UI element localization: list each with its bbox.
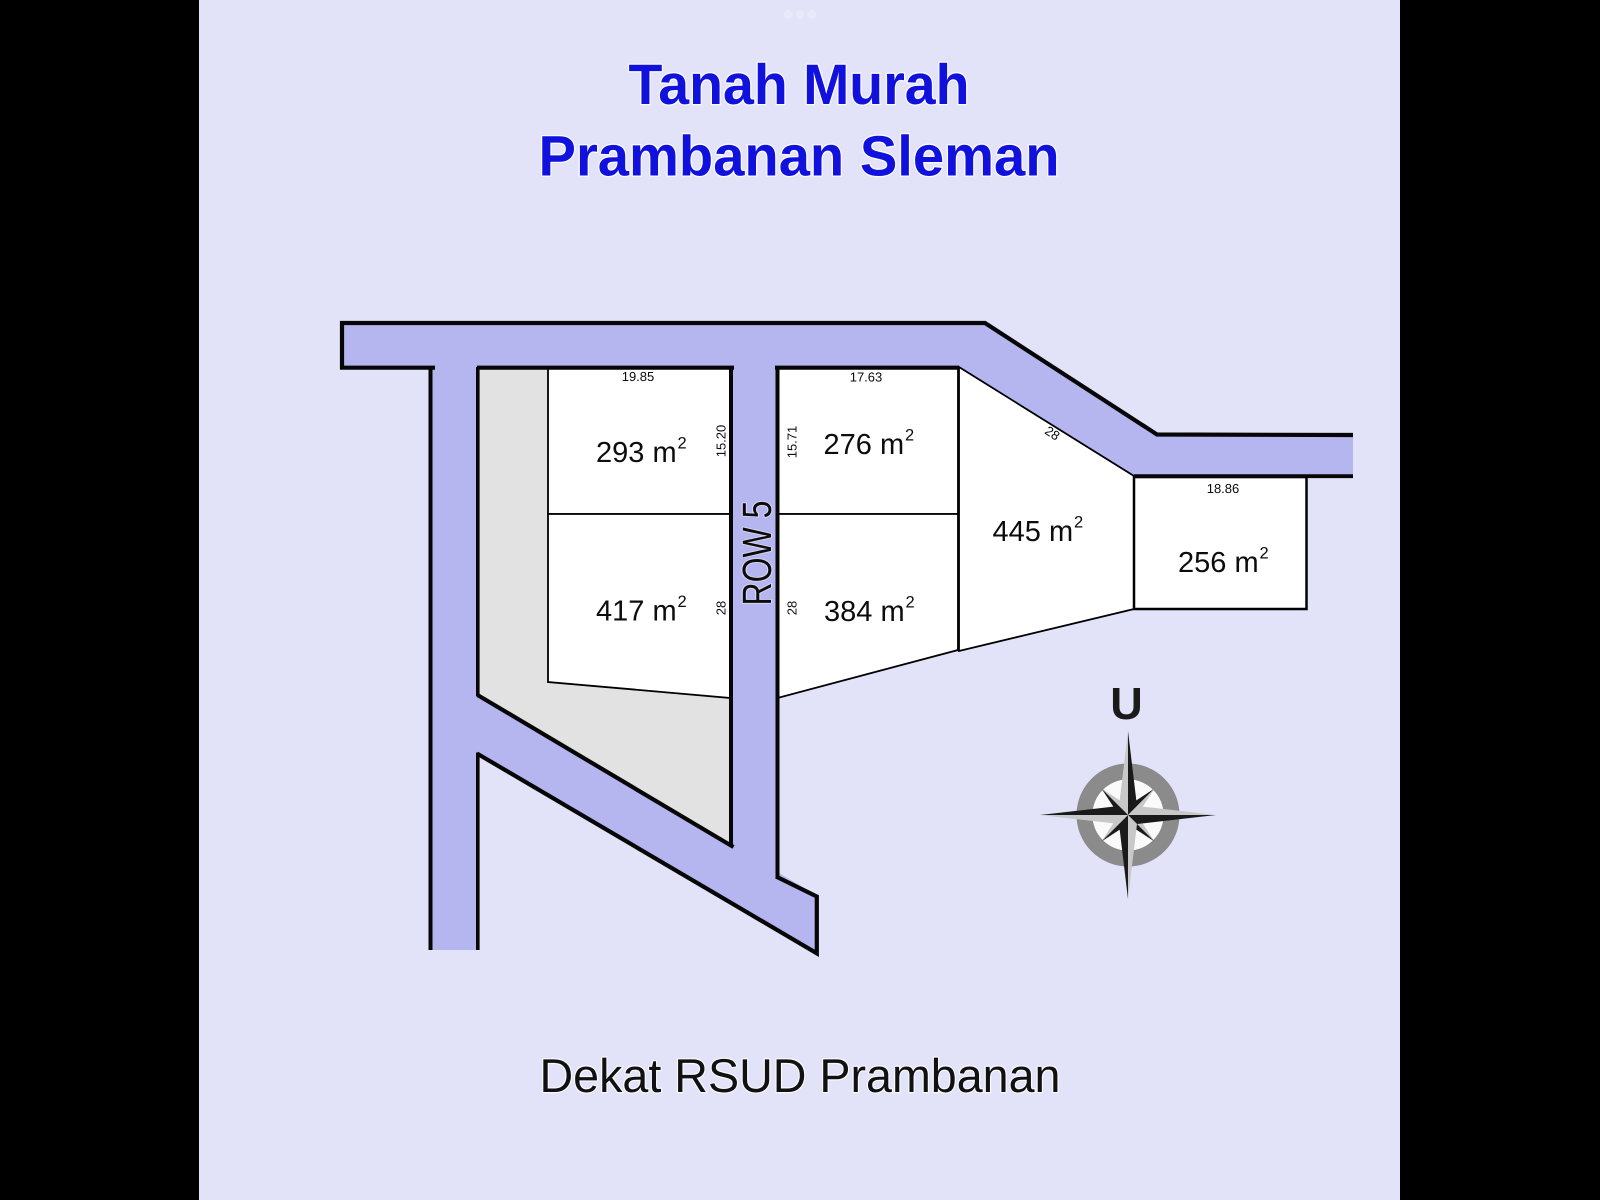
svg-text:15.71: 15.71 bbox=[785, 426, 800, 459]
svg-text:2: 2 bbox=[1260, 545, 1269, 563]
svg-text:28: 28 bbox=[785, 601, 800, 615]
svg-text:Dekat RSUD Prambanan: Dekat RSUD Prambanan bbox=[540, 1050, 1061, 1103]
svg-text:2: 2 bbox=[678, 593, 687, 611]
svg-text:U: U bbox=[1110, 678, 1143, 729]
svg-text:2: 2 bbox=[906, 594, 915, 612]
svg-text:293 m: 293 m bbox=[596, 437, 677, 469]
svg-text:417 m: 417 m bbox=[596, 596, 677, 628]
svg-text:276 m: 276 m bbox=[824, 429, 905, 461]
svg-text:2: 2 bbox=[905, 427, 914, 445]
svg-text:28: 28 bbox=[714, 601, 729, 615]
svg-text:18.86: 18.86 bbox=[1207, 481, 1240, 496]
svg-text:ROW 5: ROW 5 bbox=[734, 501, 780, 606]
svg-text:Prambanan Sleman: Prambanan Sleman bbox=[539, 125, 1060, 189]
svg-text:15.20: 15.20 bbox=[714, 425, 729, 458]
svg-text:445 m: 445 m bbox=[993, 516, 1074, 548]
svg-text:Tanah Murah: Tanah Murah bbox=[629, 53, 970, 117]
svg-text:19.85: 19.85 bbox=[622, 369, 655, 384]
svg-text:2: 2 bbox=[678, 435, 687, 453]
svg-text:17.63: 17.63 bbox=[850, 370, 883, 385]
svg-text:384 m: 384 m bbox=[824, 596, 905, 628]
svg-text:2: 2 bbox=[1074, 514, 1083, 532]
svg-text:256 m: 256 m bbox=[1178, 547, 1259, 579]
